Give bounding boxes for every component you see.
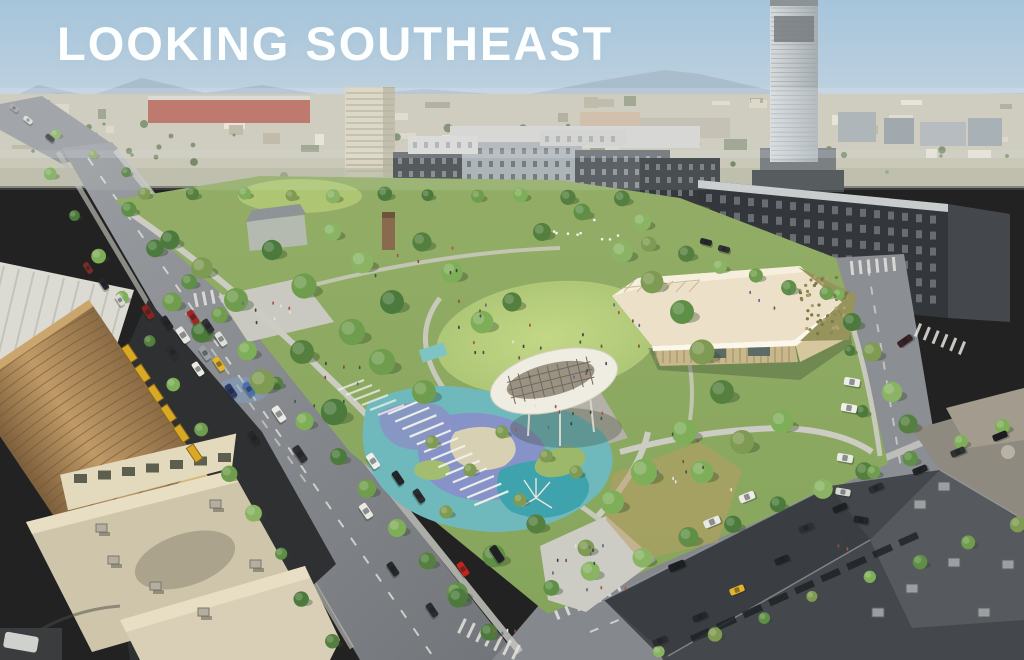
- brick-tower: [382, 216, 395, 250]
- rendering-stage: LOOKING SOUTHEAST: [0, 0, 1024, 660]
- aerial-rendering-canvas: [0, 0, 1024, 660]
- slide-title: LOOKING SOUTHEAST: [57, 16, 613, 71]
